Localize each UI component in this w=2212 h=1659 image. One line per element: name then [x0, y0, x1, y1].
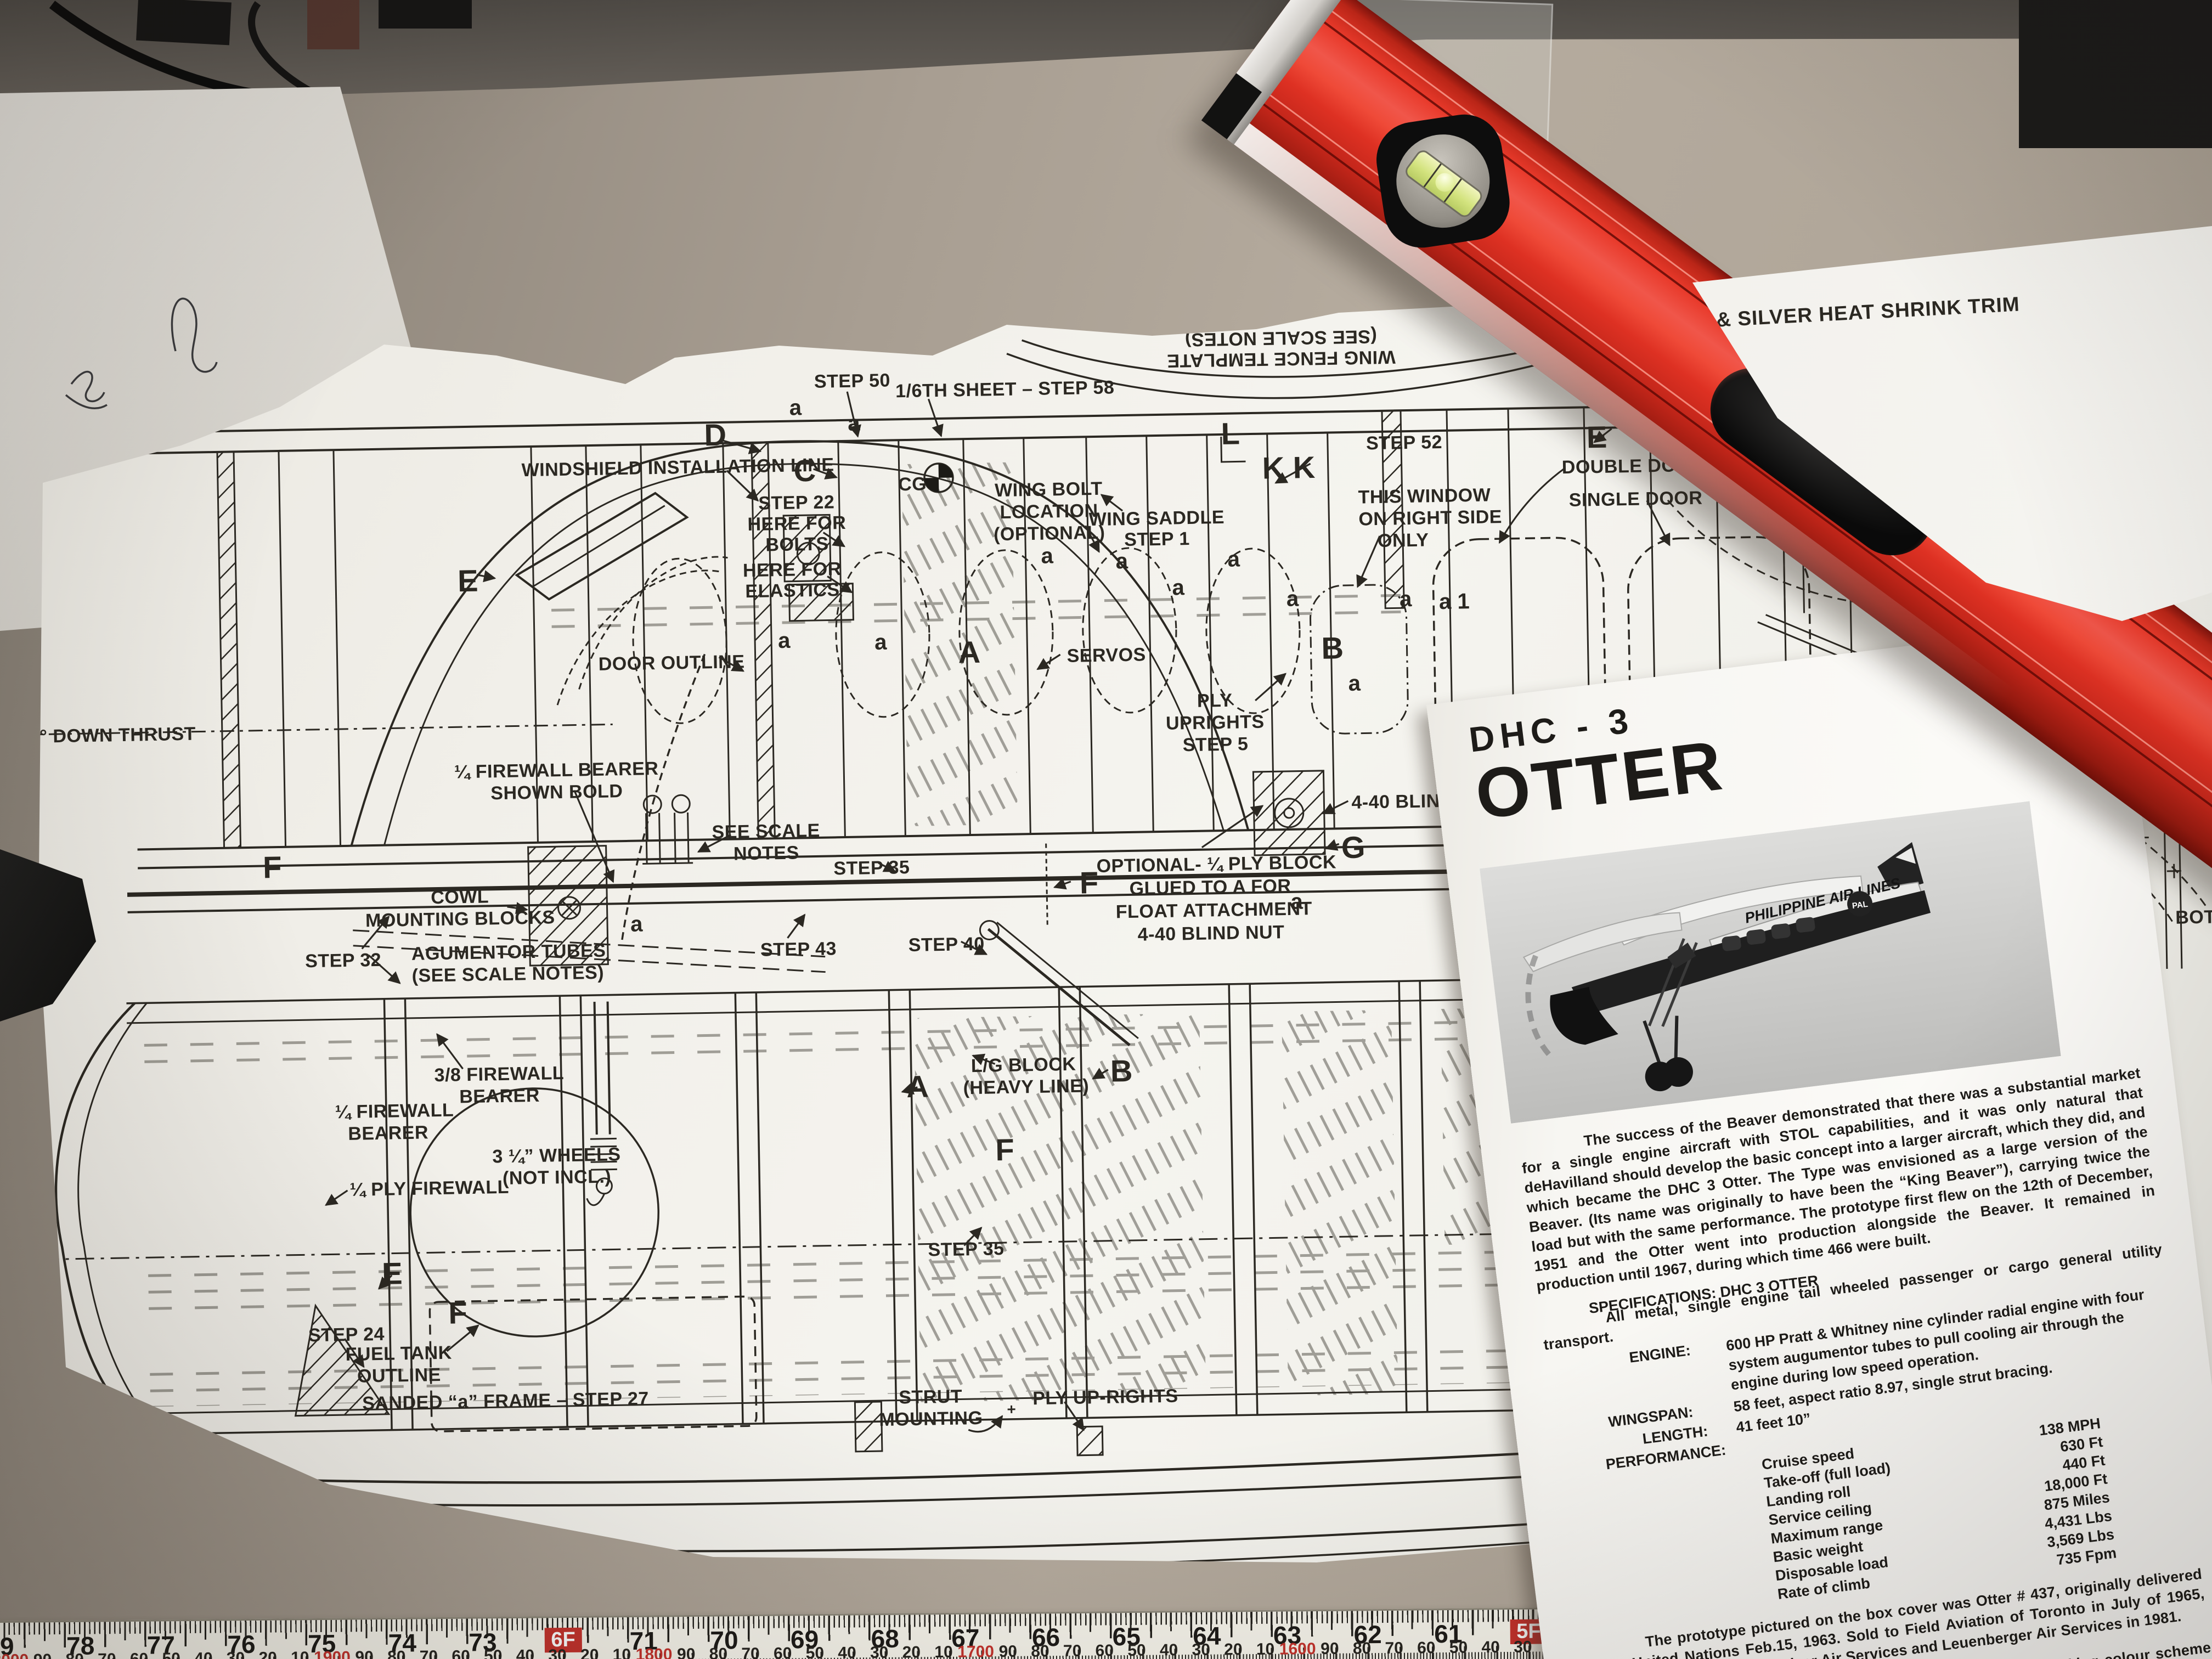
mm-number: 80 [709, 1645, 728, 1659]
plan-label: DOOR OUTLINE [598, 651, 744, 675]
plan-label: CG [898, 473, 927, 495]
mm-number: 90 [33, 1651, 52, 1659]
plan-label: 1/6TH SHEET – STEP 58 [895, 377, 1115, 402]
frame-mark-a: a [778, 629, 791, 653]
frame-mark-a: a [1400, 587, 1412, 612]
mm-number: 10 [934, 1643, 953, 1659]
mm-number: 50 [1127, 1641, 1146, 1659]
marker-letter: E [458, 563, 478, 599]
plan-label: STEP 43 [760, 938, 837, 961]
plan-label: FUEL TANK [345, 1342, 452, 1365]
mm-number: 70 [420, 1647, 438, 1659]
mm-number: 80 [1031, 1642, 1049, 1659]
mm-number: 90 [355, 1648, 374, 1659]
plan-label: AGUMENTOR TUBES [411, 940, 606, 965]
plan-label: STEP 22 [758, 492, 835, 514]
mm-number: 40 [516, 1647, 535, 1659]
mm-number: 40 [1160, 1641, 1178, 1659]
plan-label: STEP 5 [1182, 733, 1248, 756]
plan-label: STEP 35 [833, 857, 910, 879]
marker-letter: B [1321, 630, 1344, 666]
mm-number: 20 [1224, 1640, 1243, 1659]
plan-label: GLUED TO A FOR [1129, 876, 1291, 900]
mm-number: 20 [902, 1643, 921, 1659]
mm-number: 40 [194, 1650, 213, 1659]
plan-label: ¼ FIREWALL [335, 1100, 454, 1124]
aircraft-photo: PHILIPPINE AIR LINES PAL [1480, 801, 2061, 1124]
plan-label: STEP 24 [308, 1324, 385, 1346]
frame-mark-a: a [848, 411, 860, 436]
marker-letter: F [995, 1132, 1014, 1168]
mm-number: 50 [162, 1650, 180, 1659]
marker-letter: B [1110, 1053, 1133, 1089]
mm-number: 30 [1514, 1638, 1532, 1657]
mm-number: 40 [838, 1644, 856, 1659]
marker-letter: F [1079, 865, 1098, 901]
mm-number: 80 [1353, 1639, 1372, 1658]
frame-mark-a: a [1172, 575, 1184, 600]
plan-label: WINDSHIELD INSTALLATION LINE [521, 454, 834, 481]
mm-number: 40 [1481, 1638, 1500, 1657]
mm-number: 30 [1192, 1641, 1210, 1659]
plan-label: STEP 50 [814, 370, 891, 392]
mm-hundred-number: 1800 [636, 1645, 673, 1659]
photo-scene: STEP 501/6TH SHEET – STEP 58WING FENCE T… [0, 0, 2212, 1659]
marker-letter: F [448, 1295, 467, 1331]
trim-sheet-label: & SILVER HEAT SHRINK TRIM [1716, 293, 2020, 332]
mm-number: 80 [387, 1648, 406, 1659]
plan-label: STEP 40 [909, 934, 985, 956]
plan-label: STRUT [899, 1386, 962, 1408]
frame-mark-a: a [1348, 672, 1361, 696]
plan-label: SERVOS [1066, 644, 1146, 667]
plan-label: 4-40 BLIND NUT [1137, 922, 1284, 946]
frame-mark-a: a [1227, 547, 1240, 572]
mm-number: 20 [258, 1649, 277, 1659]
plan-label: STEP 1 [1124, 528, 1190, 551]
plan-label: OPTIONAL- ¼ PLY BLOCK [1096, 851, 1336, 877]
plan-label: SANDED “a” FRAME – STEP 27 [362, 1388, 649, 1414]
plan-label: THIS WINDOW [1358, 484, 1491, 508]
plan-label: 3 ¼” WHEELS [492, 1144, 621, 1167]
mm-number: 20 [580, 1646, 599, 1659]
mm-number: 70 [1385, 1639, 1403, 1658]
frame-mark-a: a 1 [1439, 589, 1470, 614]
dark-box-top-right [2019, 0, 2212, 148]
mm-number: 30 [870, 1644, 889, 1659]
mm-number: 50 [484, 1647, 503, 1659]
frame-mark-a: a [1290, 889, 1303, 914]
mm-number: 30 [227, 1649, 245, 1659]
marker-letter: D [704, 417, 727, 453]
marker-letter: E [382, 1255, 403, 1291]
plan-label: PLY [1197, 690, 1233, 712]
frame-mark-a: a [789, 396, 802, 420]
vial-bubble [1432, 170, 1458, 196]
photo-pal-logo: PAL [1852, 900, 1869, 911]
plan-label: BEARER [459, 1085, 540, 1108]
mm-hundred-number: 1900 [314, 1648, 351, 1659]
marker-letter: C [793, 453, 816, 489]
plan-label: STEP 35 [928, 1238, 1005, 1261]
plan-label: ¼ FIREWALL BEARER [454, 758, 659, 783]
marker-letter: F [263, 849, 282, 885]
plan-label: STEP 32 [305, 950, 382, 972]
plan-label: SEE SCALE [712, 820, 820, 843]
mm-number: 50 [1449, 1639, 1468, 1657]
plan-label: (HEAVY LINE) [963, 1075, 1089, 1099]
frame-mark-a: a [874, 630, 887, 655]
mm-number: 80 [65, 1651, 84, 1659]
plan-label: HERE FOR [747, 512, 846, 535]
mm-number: 90 [677, 1645, 696, 1659]
plan-label: 2° DOWN THRUST [29, 724, 196, 748]
mm-number: 10 [1256, 1640, 1275, 1659]
mm-number: 10 [291, 1649, 309, 1659]
mm-number: 50 [806, 1644, 825, 1659]
plan-label: FLOAT ATTACHMENT [1116, 898, 1313, 923]
mm-number: 60 [1095, 1641, 1114, 1659]
mm-number: 70 [98, 1650, 116, 1659]
mm-number: 30 [548, 1646, 567, 1659]
plan-label: NOTES [733, 842, 799, 865]
plan-label: MOUNTING [879, 1408, 983, 1431]
frame-mark-a: a [1286, 587, 1299, 612]
plan-label: WING BOLT [995, 478, 1103, 501]
plan-label: WING SADDLE [1088, 507, 1224, 531]
plan-label: SHOWN BOLD [490, 781, 623, 804]
plan-label: 3/8 FIREWALL [434, 1063, 564, 1086]
mm-number: 90 [1321, 1640, 1339, 1658]
plan-label: ¼ PLY FIREWALL [349, 1177, 509, 1201]
mm-number: 70 [741, 1645, 760, 1659]
plan-label: L/G BLOCK [971, 1054, 1076, 1077]
mm-number: 60 [130, 1650, 149, 1659]
mm-hundred-number: 1600 [1279, 1640, 1316, 1659]
plan-label: ON RIGHT SIDE [1358, 506, 1502, 531]
plan-label: COWL [431, 886, 489, 909]
marker-letter: L [1221, 415, 1240, 452]
plan-label: OUTLINE [357, 1364, 441, 1387]
plan-label: BOT [2175, 906, 2212, 928]
frame-mark-a: a [1041, 544, 1053, 568]
plan-label: BOLTS [765, 533, 829, 556]
plan-label: LOCATION [1000, 500, 1098, 523]
plan-label: (SEE SCALE NOTES) [411, 962, 604, 987]
plan-label: MOUNTING BLOCKS [365, 907, 555, 932]
mm-number: 60 [1417, 1639, 1436, 1657]
plan-label: (NOT INCL.) [503, 1166, 612, 1189]
mm-number: 90 [998, 1643, 1017, 1659]
mm-number: 60 [774, 1644, 792, 1659]
mm-number: 10 [613, 1646, 631, 1659]
mm-number: 60 [452, 1647, 470, 1659]
plan-label: PLY UP-RIGHTS [1032, 1386, 1178, 1410]
plan-label: ELASTICS [745, 579, 840, 602]
marker-letter: A [906, 1068, 929, 1104]
plan-label: BEARER [348, 1122, 428, 1145]
frame-mark-a: a [630, 912, 643, 936]
marker-letter: G [1341, 829, 1365, 865]
marker-letter: K K [1262, 449, 1316, 486]
frame-mark-a: a [1115, 549, 1128, 574]
plan-label: STEP 52 [1366, 432, 1443, 454]
mm-hundred-number: 1700 [957, 1643, 994, 1659]
plan-label: UPRIGHTS [1166, 712, 1265, 735]
mm-number: 70 [1063, 1642, 1082, 1659]
plan-label: ONLY [1378, 529, 1429, 552]
mm-hundred-number: 2000 [0, 1651, 29, 1659]
plan-label: HERE FOR [743, 558, 842, 582]
marker-letter: A [958, 634, 981, 670]
